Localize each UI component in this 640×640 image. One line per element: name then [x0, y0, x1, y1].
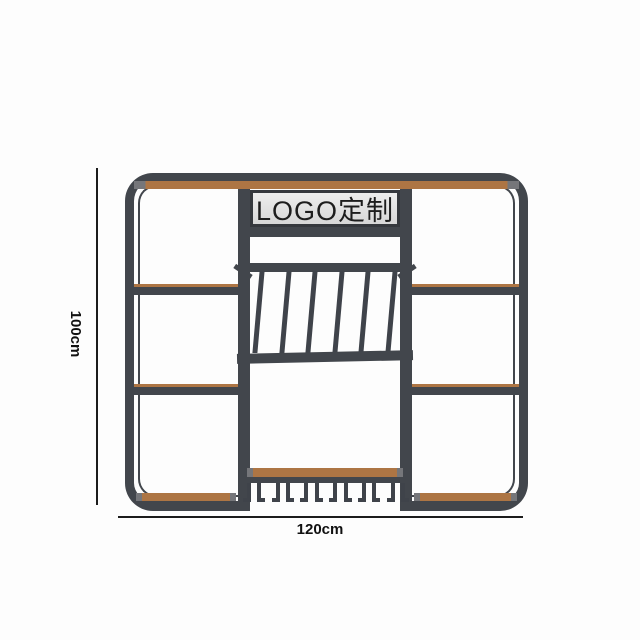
product-dimension-diagram: 100cm 120cm — [0, 0, 640, 640]
left-column-frame — [125, 173, 250, 511]
left-bottom-wood-shelf — [136, 493, 236, 501]
top-wood-strip — [134, 181, 519, 189]
glass-hook — [358, 483, 366, 502]
glass-hook — [315, 483, 323, 502]
bottle-rack-dividers — [248, 271, 402, 353]
height-dimension-label: 100cm — [68, 304, 84, 364]
divider-bar — [306, 271, 318, 353]
wine-rack-unit: LOGO定制 — [125, 173, 528, 511]
shelf-metal-rail — [412, 287, 519, 295]
right-bottom-wood-shelf — [414, 493, 517, 501]
divider-bar — [252, 271, 264, 353]
shelf-metal-rail — [412, 387, 519, 395]
right-shelf-upper — [412, 284, 519, 295]
shelf-metal-rail — [134, 287, 238, 295]
height-dimension-line — [96, 168, 98, 505]
glass-hook — [372, 483, 380, 502]
left-shelf-lower — [134, 384, 238, 395]
divider-bar — [359, 271, 371, 353]
divider-bar — [385, 271, 397, 353]
center-wood-shelf — [247, 468, 403, 477]
top-metal-rail — [245, 173, 408, 181]
glass-hook — [401, 483, 409, 502]
right-shelf-lower — [412, 384, 519, 395]
glass-hook — [387, 483, 395, 502]
rail-below-sign — [238, 227, 412, 237]
glass-hook — [243, 483, 251, 502]
divider-bar — [332, 271, 344, 353]
shelf-metal-rail — [134, 387, 238, 395]
right-column-frame — [400, 173, 528, 511]
divider-bar — [279, 271, 291, 353]
width-dimension-line — [118, 516, 523, 518]
left-shelf-upper — [134, 284, 238, 295]
glass-hook — [344, 483, 352, 502]
logo-sign-text: LOGO定制 — [256, 189, 394, 228]
glass-hook — [272, 483, 280, 502]
width-dimension-label: 120cm — [270, 521, 370, 538]
glass-hook — [286, 483, 294, 502]
glass-hook — [300, 483, 308, 502]
logo-sign-panel: LOGO定制 — [250, 190, 400, 227]
glass-hook — [329, 483, 337, 502]
stemware-glass-hangers — [243, 483, 409, 505]
glass-hook — [257, 483, 265, 502]
